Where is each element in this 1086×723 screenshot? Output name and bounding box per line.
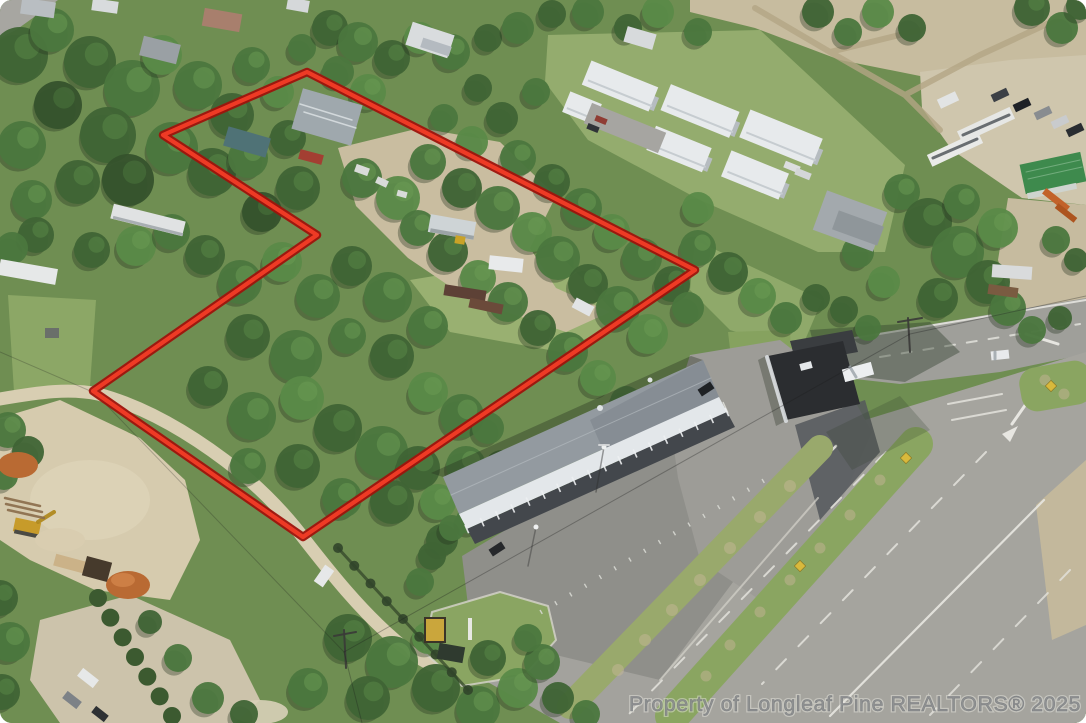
aerial-photo-canvas: Property of Longleaf Pine REALTORS® 2025… [0, 0, 1086, 723]
aerial-photo: Property of Longleaf Pine REALTORS® 2025… [0, 0, 1086, 723]
watermark-text: Property of Longleaf Pine REALTORS® 2025 [629, 692, 1081, 716]
